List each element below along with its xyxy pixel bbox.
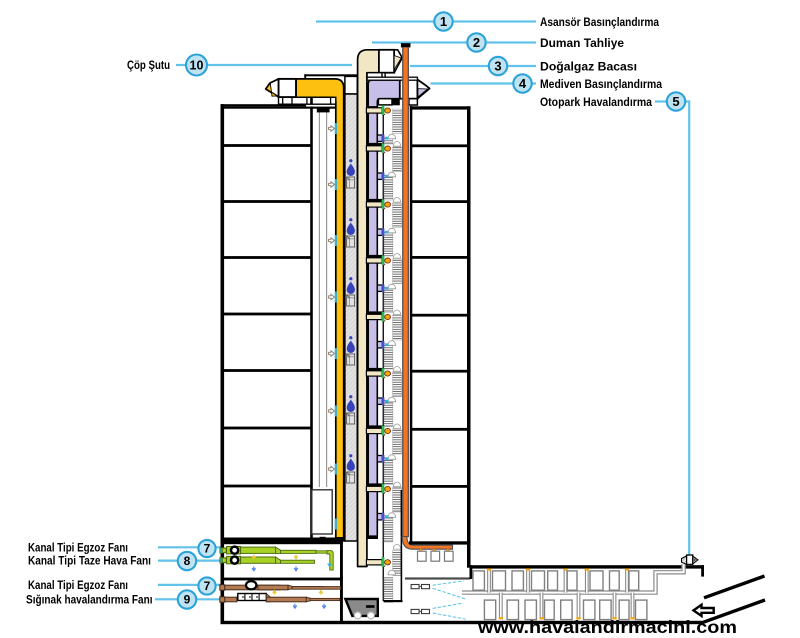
svg-text:2: 2 — [473, 35, 480, 50]
svg-text:1: 1 — [440, 14, 447, 29]
svg-text:8: 8 — [184, 554, 191, 568]
svg-text:9: 9 — [184, 593, 191, 607]
svg-text:3: 3 — [494, 58, 501, 73]
svg-text:10: 10 — [190, 58, 204, 72]
svg-text:Otopark Havalandırma: Otopark Havalandırma — [540, 97, 653, 109]
svg-text:7: 7 — [204, 542, 211, 556]
svg-text:Çöp Şutu: Çöp Şutu — [127, 60, 170, 72]
svg-text:Asansör Basınçlandırma: Asansör Basınçlandırma — [540, 17, 660, 29]
svg-text:Sığınak havalandırma Fanı: Sığınak havalandırma Fanı — [26, 594, 153, 606]
svg-text:Mediven Basınçlandırma: Mediven Basınçlandırma — [540, 79, 663, 91]
svg-text:Duman Tahliye: Duman Tahliye — [540, 38, 624, 50]
svg-text:Kanal Tipi Taze Hava Fanı: Kanal Tipi Taze Hava Fanı — [28, 556, 151, 568]
svg-text:Kanal Tipi Egzoz Fanı: Kanal Tipi Egzoz Fanı — [28, 580, 128, 592]
svg-text:Doğalgaz Bacası: Doğalgaz Bacası — [540, 62, 637, 74]
svg-text:Kanal Tipi Egzoz Fanı: Kanal Tipi Egzoz Fanı — [28, 542, 128, 554]
svg-text:7: 7 — [204, 579, 211, 593]
svg-text:4: 4 — [519, 76, 527, 91]
svg-text:5: 5 — [672, 94, 679, 109]
